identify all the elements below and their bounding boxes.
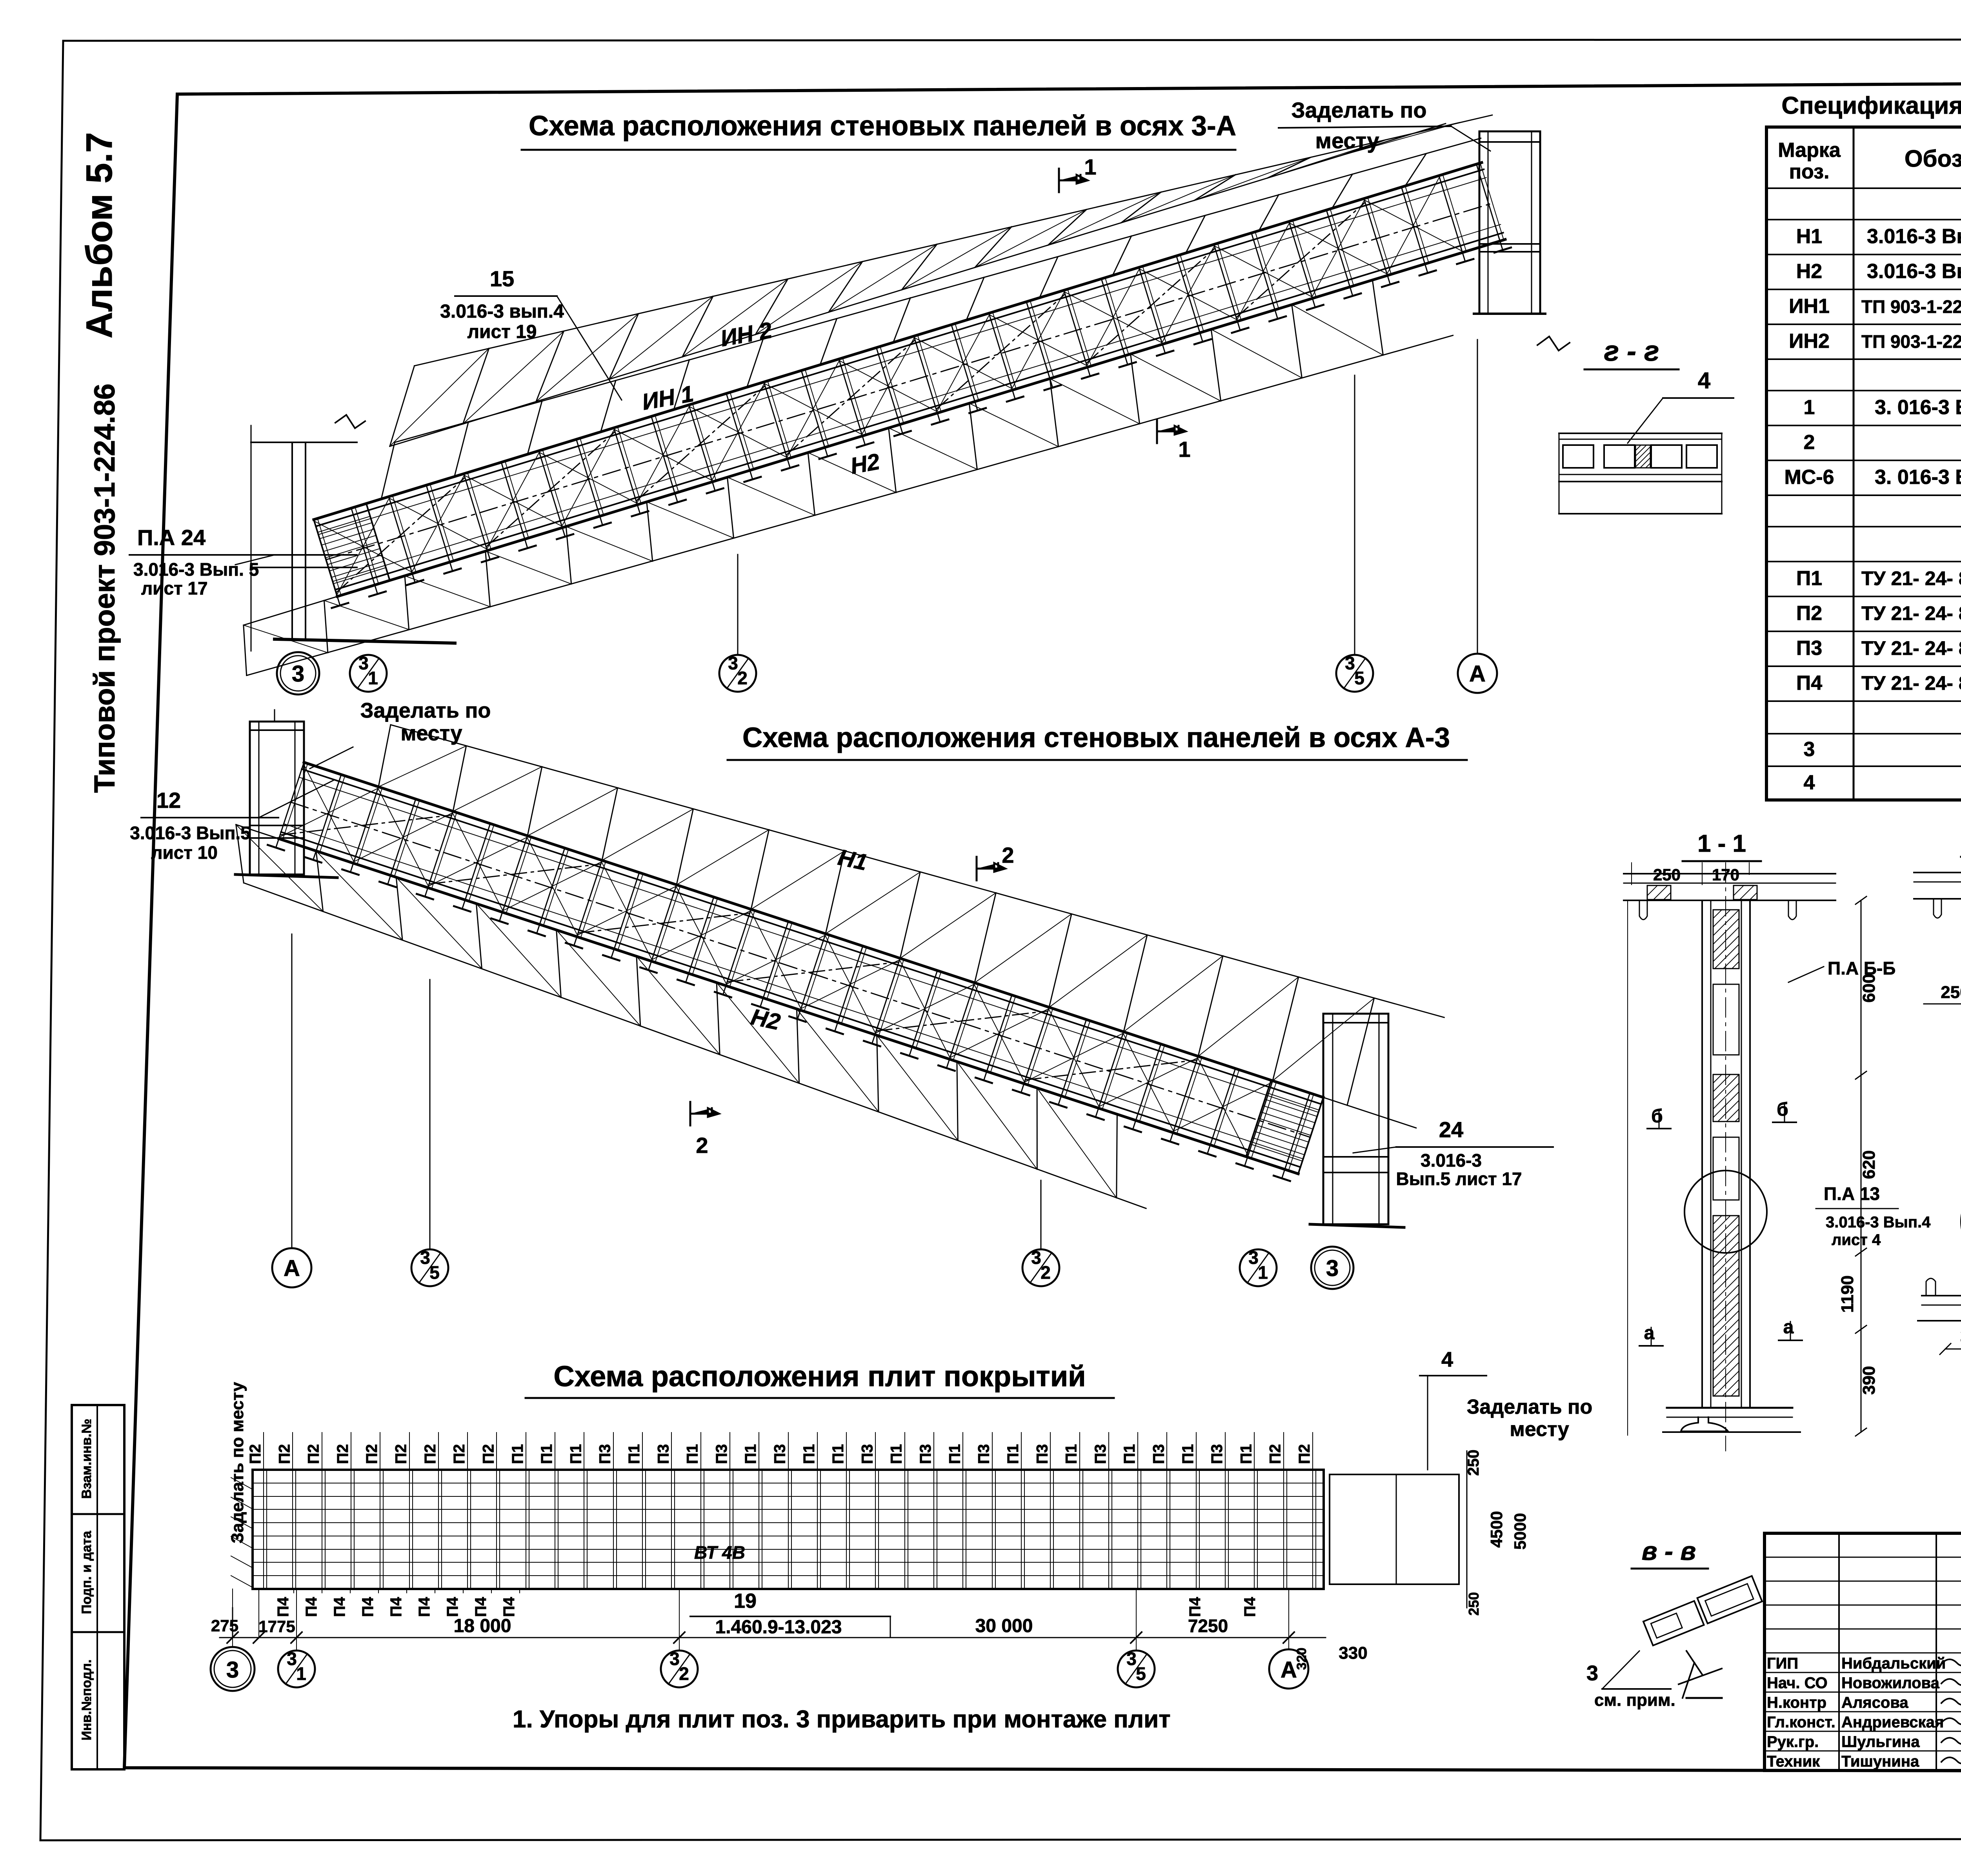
svg-text:А: А [284, 1256, 300, 1281]
svg-text:1: 1 [1084, 155, 1096, 179]
svg-text:г - г: г - г [1604, 336, 1659, 367]
svg-text:П3: П3 [771, 1444, 789, 1464]
svg-text:Новожилова: Новожилова [1841, 1674, 1940, 1692]
svg-text:7250: 7250 [1188, 1616, 1228, 1636]
svg-text:Тишунина: Тишунина [1841, 1753, 1919, 1770]
svg-text:П2: П2 [334, 1444, 351, 1464]
svg-text:П1: П1 [684, 1444, 701, 1464]
svg-text:Альбом 5.7: Альбом 5.7 [78, 132, 120, 338]
svg-text:3.016-3 Вып. 2: 3.016-3 Вып. 2 [1867, 260, 1961, 283]
svg-text:П3: П3 [917, 1444, 934, 1464]
svg-text:2: 2 [1804, 431, 1815, 454]
svg-text:месту: месту [400, 722, 462, 745]
svg-text:б: б [1651, 1106, 1663, 1127]
svg-text:1: 1 [1804, 396, 1815, 419]
svg-text:3: 3 [669, 1649, 680, 1669]
svg-text:Нач. СО: Нач. СО [1767, 1674, 1828, 1692]
svg-text:1190: 1190 [1838, 1275, 1857, 1312]
svg-text:Заделать по: Заделать по [1291, 98, 1426, 122]
svg-text:Н2: Н2 [848, 449, 881, 479]
svg-text:3.016-3 Вып. 2: 3.016-3 Вып. 2 [1867, 225, 1961, 248]
svg-text:3: 3 [1126, 1649, 1137, 1669]
svg-text:П1: П1 [509, 1444, 526, 1464]
svg-text:Н.контр: Н.контр [1767, 1694, 1826, 1711]
svg-text:П1: П1 [1063, 1444, 1080, 1464]
svg-text:Шульгина: Шульгина [1841, 1733, 1920, 1751]
svg-text:П2: П2 [480, 1444, 497, 1464]
svg-text:3.016-3 Вып.4: 3.016-3 Вып.4 [1826, 1214, 1931, 1231]
svg-text:3: 3 [1248, 1247, 1259, 1268]
svg-text:П4: П4 [1796, 672, 1822, 694]
svg-text:П2: П2 [393, 1444, 410, 1464]
svg-text:Обозначение: Обозначение [1905, 145, 1961, 172]
svg-text:П.А 13: П.А 13 [1824, 1183, 1880, 1204]
svg-text:П2: П2 [1296, 1444, 1313, 1464]
svg-text:Взам.инв.№: Взам.инв.№ [79, 1419, 94, 1499]
svg-text:ТУ 21- 24- 82- 80: ТУ 21- 24- 82- 80 [1861, 637, 1961, 659]
svg-text:П2: П2 [305, 1444, 322, 1464]
svg-text:3: 3 [358, 653, 369, 673]
svg-text:3: 3 [728, 653, 738, 673]
svg-text:1775: 1775 [258, 1617, 295, 1636]
svg-text:П2: П2 [1267, 1444, 1284, 1464]
svg-text:3.016-3 Вып.5: 3.016-3 Вып.5 [130, 823, 250, 843]
svg-text:Марка: Марка [1778, 139, 1841, 162]
svg-text:3: 3 [1804, 738, 1815, 761]
svg-text:П2: П2 [422, 1444, 439, 1464]
svg-text:Алясова: Алясова [1841, 1694, 1908, 1711]
svg-text:3. 016-3 Вып. 4: 3. 016-3 Вып. 4 [1875, 466, 1961, 489]
svg-text:1 - 1: 1 - 1 [1697, 830, 1746, 857]
svg-text:см. прим.: см. прим. [1594, 1691, 1675, 1710]
svg-text:330: 330 [1339, 1643, 1367, 1663]
svg-text:П3: П3 [597, 1444, 614, 1464]
svg-text:Заделать по месту: Заделать по месту [228, 1382, 247, 1543]
svg-text:в - в: в - в [1642, 1536, 1696, 1565]
svg-text:170: 170 [1712, 865, 1739, 884]
svg-text:П1: П1 [567, 1444, 584, 1464]
svg-text:Типовой проект 903-1-224.86: Типовой проект 903-1-224.86 [88, 384, 121, 793]
svg-text:3.016-3 вып.4: 3.016-3 вып.4 [440, 301, 564, 322]
svg-text:3: 3 [292, 661, 304, 687]
svg-text:П1: П1 [830, 1444, 847, 1464]
svg-text:П2: П2 [451, 1444, 468, 1464]
svg-text:ТУ 21- 24- 82- 80: ТУ 21- 24- 82- 80 [1861, 672, 1961, 694]
svg-text:месту: месту [1510, 1418, 1569, 1441]
svg-text:3: 3 [226, 1657, 239, 1683]
svg-text:4500: 4500 [1487, 1511, 1506, 1547]
svg-text:П1: П1 [800, 1444, 818, 1464]
svg-text:П1: П1 [742, 1444, 759, 1464]
svg-text:19: 19 [734, 1590, 757, 1612]
svg-text:Заделать по: Заделать по [1467, 1396, 1592, 1418]
svg-text:ИН2: ИН2 [1789, 330, 1830, 353]
svg-text:3: 3 [420, 1247, 430, 1268]
svg-text:П4: П4 [275, 1597, 292, 1617]
svg-text:Рук.гр.: Рук.гр. [1767, 1733, 1819, 1751]
svg-text:месту: месту [1315, 128, 1379, 153]
svg-text:ТУ 21- 24- 82- 80: ТУ 21- 24- 82- 80 [1861, 602, 1961, 624]
svg-text:Н1: Н1 [1796, 225, 1822, 248]
svg-text:лист 10: лист 10 [151, 842, 218, 863]
svg-text:П4: П4 [1186, 1597, 1204, 1617]
svg-text:П3: П3 [1092, 1444, 1109, 1464]
svg-text:П1: П1 [1179, 1444, 1197, 1464]
svg-text:П1: П1 [1004, 1444, 1022, 1464]
svg-text:П4: П4 [444, 1597, 461, 1617]
svg-text:ГИП: ГИП [1767, 1655, 1798, 1672]
svg-text:П3: П3 [1033, 1444, 1051, 1464]
svg-text:П2: П2 [247, 1444, 264, 1464]
svg-text:лист 19: лист 19 [468, 322, 537, 342]
svg-text:1. Упоры для плит поз. 3: 1. Упоры для плит поз. 3 приварить при м… [513, 1706, 1171, 1733]
svg-text:3.016-3: 3.016-3 [1421, 1150, 1482, 1171]
svg-text:ТП 903-1-224.86: ТП 903-1-224.86 [1861, 331, 1961, 352]
svg-text:24: 24 [1439, 1117, 1463, 1142]
svg-text:3.016-3 Вып. 5: 3.016-3 Вып. 5 [133, 559, 259, 580]
svg-text:П1: П1 [1237, 1444, 1255, 1464]
svg-text:3: 3 [1031, 1247, 1041, 1268]
svg-text:П3: П3 [713, 1444, 730, 1464]
svg-text:П3: П3 [975, 1444, 993, 1464]
svg-text:П3: П3 [1150, 1444, 1167, 1464]
svg-text:Спецификация элементов стено: Спецификация элементов стеновых панелей … [1781, 92, 1961, 119]
svg-text:ТУ 21- 24- 82- 80: ТУ 21- 24- 82- 80 [1861, 567, 1961, 589]
svg-text:18 000: 18 000 [454, 1616, 511, 1636]
svg-text:П4: П4 [303, 1597, 320, 1617]
svg-text:П1: П1 [1121, 1444, 1138, 1464]
svg-text:П4: П4 [331, 1597, 348, 1617]
svg-text:275: 275 [211, 1616, 238, 1635]
svg-text:А: А [1281, 1657, 1297, 1683]
svg-text:Гл.конст.: Гл.конст. [1767, 1714, 1835, 1731]
svg-text:4: 4 [1441, 1348, 1453, 1371]
svg-text:12: 12 [156, 788, 181, 813]
svg-text:2: 2 [696, 1133, 708, 1158]
svg-text:ТП 903-1-224.86: ТП 903-1-224.86 [1861, 296, 1961, 317]
svg-text:ВТ 4В: ВТ 4В [694, 1542, 745, 1563]
svg-text:П3: П3 [859, 1444, 876, 1464]
svg-text:2: 2 [1002, 843, 1014, 867]
svg-text:П4: П4 [1241, 1597, 1259, 1617]
svg-text:Вып.5 лист 17: Вып.5 лист 17 [1396, 1169, 1522, 1189]
svg-text:Андриевская: Андриевская [1841, 1714, 1944, 1731]
svg-text:П.А Б-Б: П.А Б-Б [1828, 958, 1896, 978]
svg-text:П2: П2 [276, 1444, 293, 1464]
svg-text:Схема расположения плит покр: Схема расположения плит покрытий [553, 1360, 1086, 1392]
svg-text:Н2: Н2 [1796, 260, 1822, 283]
svg-text:620: 620 [1859, 1150, 1879, 1179]
svg-text:П3: П3 [1208, 1444, 1226, 1464]
svg-text:П1: П1 [1796, 567, 1822, 590]
svg-text:250: 250 [1466, 1592, 1482, 1616]
svg-text:390: 390 [1859, 1366, 1879, 1394]
svg-text:3: 3 [1326, 1256, 1339, 1281]
svg-text:А: А [1469, 661, 1486, 687]
svg-text:П3: П3 [655, 1444, 672, 1464]
svg-text:П4: П4 [387, 1597, 405, 1617]
svg-text:ИН1: ИН1 [1789, 295, 1830, 318]
svg-text:лист 17: лист 17 [141, 578, 208, 598]
svg-text:3: 3 [1586, 1661, 1598, 1685]
svg-text:Схема расположения стеновых па: Схема расположения стеновых панелей в ос… [529, 111, 1236, 142]
svg-text:1.460.9-13.023: 1.460.9-13.023 [715, 1617, 842, 1638]
svg-text:П1: П1 [626, 1444, 643, 1464]
svg-text:30 000: 30 000 [975, 1616, 1033, 1636]
svg-text:5000: 5000 [1511, 1513, 1529, 1549]
svg-text:а: а [1783, 1317, 1794, 1338]
svg-text:Техник: Техник [1767, 1753, 1820, 1770]
svg-text:Схема расположения стеновых па: Схема расположения стеновых панелей в ос… [742, 722, 1450, 753]
svg-text:П4: П4 [472, 1597, 489, 1617]
svg-text:П4: П4 [416, 1597, 433, 1617]
svg-text:б: б [1777, 1099, 1788, 1120]
svg-text:Заделать по: Заделать по [360, 699, 491, 722]
svg-text:П.А 24: П.А 24 [137, 525, 206, 550]
svg-text:4: 4 [1804, 771, 1815, 794]
svg-text:Подп. и дата: Подп. и дата [79, 1531, 94, 1614]
svg-text:Нибдальский: Нибдальский [1841, 1655, 1946, 1672]
svg-text:1: 1 [1178, 437, 1190, 462]
svg-text:П2: П2 [1796, 602, 1822, 625]
svg-text:поз.: поз. [1789, 160, 1830, 183]
svg-text:лист 4: лист 4 [1832, 1231, 1881, 1249]
svg-text:П4: П4 [500, 1597, 518, 1617]
svg-text:П1: П1 [538, 1444, 555, 1464]
svg-text:15: 15 [490, 266, 514, 291]
svg-text:П3: П3 [1796, 637, 1822, 660]
svg-text:3. 016-3 Вып. 4: 3. 016-3 Вып. 4 [1875, 396, 1961, 419]
svg-text:Инв.№подл.: Инв.№подл. [79, 1660, 94, 1741]
svg-text:П1: П1 [946, 1444, 963, 1464]
svg-text:МС-6: МС-6 [1784, 466, 1834, 489]
svg-text:3: 3 [287, 1649, 297, 1669]
svg-text:250: 250 [1941, 983, 1961, 1002]
svg-text:П2: П2 [363, 1444, 380, 1464]
svg-text:250: 250 [1465, 1450, 1482, 1476]
svg-text:а: а [1644, 1323, 1655, 1343]
svg-text:П4: П4 [359, 1597, 377, 1617]
svg-text:П1: П1 [888, 1444, 905, 1464]
svg-text:250: 250 [1653, 865, 1681, 884]
svg-text:4: 4 [1698, 368, 1710, 393]
svg-text:3: 3 [1345, 653, 1355, 673]
